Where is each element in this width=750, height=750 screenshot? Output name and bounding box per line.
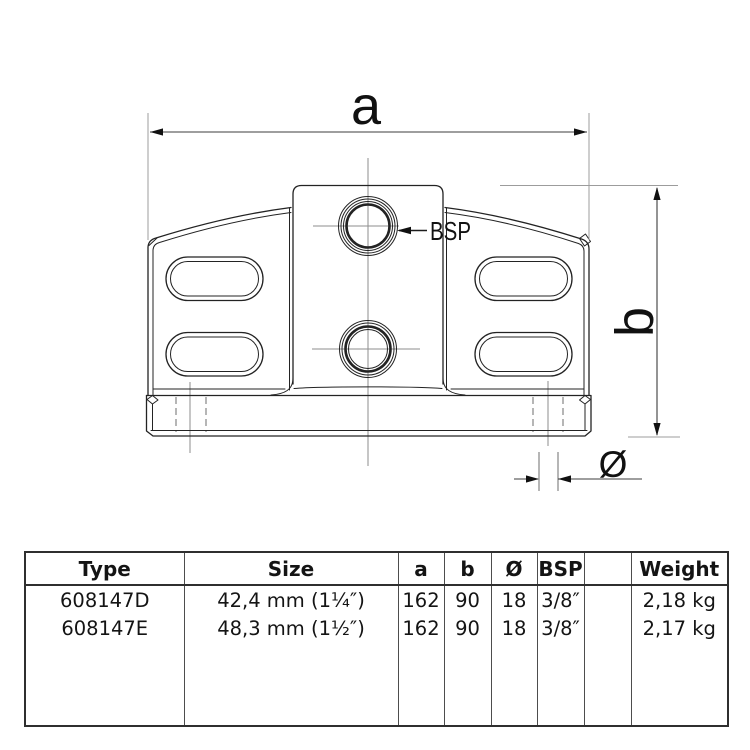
arrow-left [150, 128, 163, 135]
col-header-type: Type [25, 552, 184, 585]
slot-left-upper [166, 257, 263, 301]
cell-weight: 2,18 kg [631, 585, 728, 614]
cell-size: 48,3 mm (1½″) [184, 614, 398, 642]
cell-type: 608147D [25, 585, 184, 614]
part-outline [147, 186, 592, 437]
cell-size: 42,4 mm (1¼″) [184, 585, 398, 614]
header-row: Type Size a b Ø BSP Weight [25, 552, 728, 585]
col-header-size: Size [184, 552, 398, 585]
slot-right-lower [475, 333, 572, 377]
dim-b-label: b [605, 307, 665, 337]
bsp-callout: BSP [397, 216, 471, 246]
dim-a-label: a [351, 76, 382, 136]
table-row: 608147E 48,3 mm (1½″) 162 90 18 3/8″ 2,1… [25, 614, 728, 642]
arrow-inner-right [558, 475, 571, 482]
dim-diameter-label: Ø [599, 444, 628, 485]
bsp-label: BSP [430, 216, 471, 246]
cell-a: 162 [398, 585, 444, 614]
dimension-diameter: Ø [514, 444, 642, 491]
base-left-chamfer [147, 396, 158, 405]
bsp-arrow [397, 227, 411, 234]
page-background: a b Ø BSP [0, 0, 750, 750]
arrow-inner-left [526, 475, 539, 482]
cell-weight: 2,17 kg [631, 614, 728, 642]
cell-b: 90 [444, 585, 491, 614]
table-filler-row [25, 642, 728, 726]
cell-b: 90 [444, 614, 491, 642]
col-header-diameter: Ø [491, 552, 537, 585]
base-right-chamfer [580, 396, 591, 405]
table-row: 608147D 42,4 mm (1¼″) 162 90 18 3/8″ 2,1… [25, 585, 728, 614]
cell-type: 608147E [25, 614, 184, 642]
arrow-right [574, 128, 587, 135]
hidden-lines [176, 397, 563, 432]
col-header-weight: Weight [631, 552, 728, 585]
col-header-a: a [398, 552, 444, 585]
cell-a: 162 [398, 614, 444, 642]
cell-diameter: 18 [491, 585, 537, 614]
cell-spare [584, 585, 631, 614]
cell-bsp: 3/8″ [537, 585, 584, 614]
arrow-bottom [653, 423, 660, 436]
col-header-bsp: BSP [537, 552, 584, 585]
slot-left-lower [166, 333, 263, 377]
slot-right-upper [475, 257, 572, 301]
cell-spare [584, 614, 631, 642]
col-header-spare [584, 552, 631, 585]
cell-bsp: 3/8″ [537, 614, 584, 642]
spec-table: Type Size a b Ø BSP Weight 608147D 42,4 … [24, 551, 729, 727]
base-plate [147, 396, 592, 437]
cell-diameter: 18 [491, 614, 537, 642]
col-header-b: b [444, 552, 491, 585]
technical-drawing: a b Ø BSP [0, 0, 750, 545]
arrow-top [653, 187, 660, 200]
